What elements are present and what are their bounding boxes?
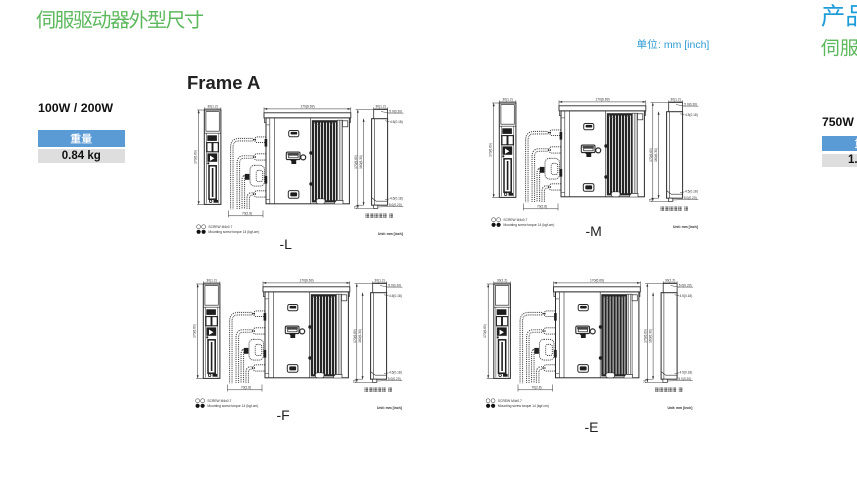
svg-text:4.5(0.18): 4.5(0.18): [390, 120, 403, 124]
svg-text:30(1.2): 30(1.2): [206, 278, 216, 282]
svg-text:30(1.2): 30(1.2): [665, 278, 675, 282]
svg-text:170(6.69): 170(6.69): [643, 329, 647, 343]
svg-text:5.0(0.20): 5.0(0.20): [684, 196, 697, 200]
svg-text:160(6.30): 160(6.30): [359, 155, 363, 169]
svg-text:170(6.69): 170(6.69): [354, 155, 358, 169]
svg-text:170(6.69): 170(6.69): [595, 98, 609, 102]
svg-text:Mounting screw torque 14 (kgf-: Mounting screw torque 14 (kgf-cm): [207, 404, 258, 408]
svg-text:Mounting screw torque 14 (kgf-: Mounting screw torque 14 (kgf-cm): [498, 404, 549, 408]
svg-text:30(1.2): 30(1.2): [375, 104, 385, 108]
svg-text:SCREW M4x0.7: SCREW M4x0.7: [207, 399, 231, 403]
svg-text:Mounting screw torque 14 (kgf-: Mounting screw torque 14 (kgf-cm): [503, 223, 554, 227]
svg-text:Unit: mm [inch]: Unit: mm [inch]: [377, 406, 402, 410]
svg-text:Unit: mm [inch]: Unit: mm [inch]: [668, 406, 693, 410]
svg-text:SCREW M4x0.7: SCREW M4x0.7: [503, 218, 527, 222]
svg-text:70(2.8): 70(2.8): [537, 205, 547, 209]
svg-text:170(6.69): 170(6.69): [353, 329, 357, 343]
svg-text:170(6.69): 170(6.69): [299, 279, 313, 283]
svg-text:170(6.69): 170(6.69): [590, 279, 604, 283]
svg-text:4.5(0.18): 4.5(0.18): [680, 294, 693, 298]
svg-text:5.0(0.20): 5.0(0.20): [388, 377, 401, 381]
svg-text:30(1.2): 30(1.2): [502, 97, 512, 101]
svg-text:30(1.2): 30(1.2): [497, 278, 507, 282]
svg-text:Unit: mm [inch]: Unit: mm [inch]: [378, 232, 403, 236]
svg-text:70(2.8): 70(2.8): [531, 386, 541, 390]
svg-text:5.0(0.20): 5.0(0.20): [678, 377, 691, 381]
svg-text:170(6.69): 170(6.69): [488, 143, 492, 157]
svg-text:170(6.69): 170(6.69): [193, 150, 197, 164]
svg-text:21: 21: [352, 379, 356, 383]
svg-text:5.0(0.20): 5.0(0.20): [388, 284, 401, 288]
svg-text:4.5(0.18): 4.5(0.18): [390, 197, 403, 201]
svg-text:5.0(0.20): 5.0(0.20): [684, 103, 697, 107]
svg-text:5.0(0.20): 5.0(0.20): [679, 284, 692, 288]
svg-text:30(1.2): 30(1.2): [670, 97, 680, 101]
svg-text:170(6.69): 170(6.69): [192, 324, 196, 338]
svg-text:160(6.30): 160(6.30): [654, 148, 658, 162]
svg-text:30(1.2): 30(1.2): [374, 278, 384, 282]
svg-text:170(6.69): 170(6.69): [649, 148, 653, 162]
svg-text:160(6.30): 160(6.30): [649, 329, 653, 343]
svg-text:170(6.69): 170(6.69): [300, 105, 314, 109]
svg-text:160(6.30): 160(6.30): [358, 329, 362, 343]
svg-text:SCREW M4x0.7: SCREW M4x0.7: [208, 225, 232, 229]
svg-text:5.0(0.20): 5.0(0.20): [389, 110, 402, 114]
svg-text:4.5(0.18): 4.5(0.18): [685, 113, 698, 117]
svg-text:21: 21: [648, 198, 652, 202]
svg-text:4.5(0.18): 4.5(0.18): [680, 371, 693, 375]
svg-text:Unit: mm [inch]: Unit: mm [inch]: [673, 225, 698, 229]
svg-text:70(2.8): 70(2.8): [241, 386, 251, 390]
svg-text:170(6.69): 170(6.69): [483, 324, 487, 338]
svg-text:SCREW M4x0.7: SCREW M4x0.7: [498, 399, 522, 403]
svg-text:70(2.8): 70(2.8): [242, 212, 252, 216]
svg-text:4.5(0.18): 4.5(0.18): [389, 371, 402, 375]
svg-text:5.0(0.20): 5.0(0.20): [389, 203, 402, 207]
svg-text:4.5(0.18): 4.5(0.18): [389, 294, 402, 298]
svg-text:4.5(0.18): 4.5(0.18): [685, 190, 698, 194]
svg-text:21: 21: [643, 379, 647, 383]
svg-text:21: 21: [353, 205, 357, 209]
svg-text:30(1.2): 30(1.2): [207, 104, 217, 108]
svg-text:Mounting screw torque 14 (kgf-: Mounting screw torque 14 (kgf-cm): [208, 230, 259, 234]
